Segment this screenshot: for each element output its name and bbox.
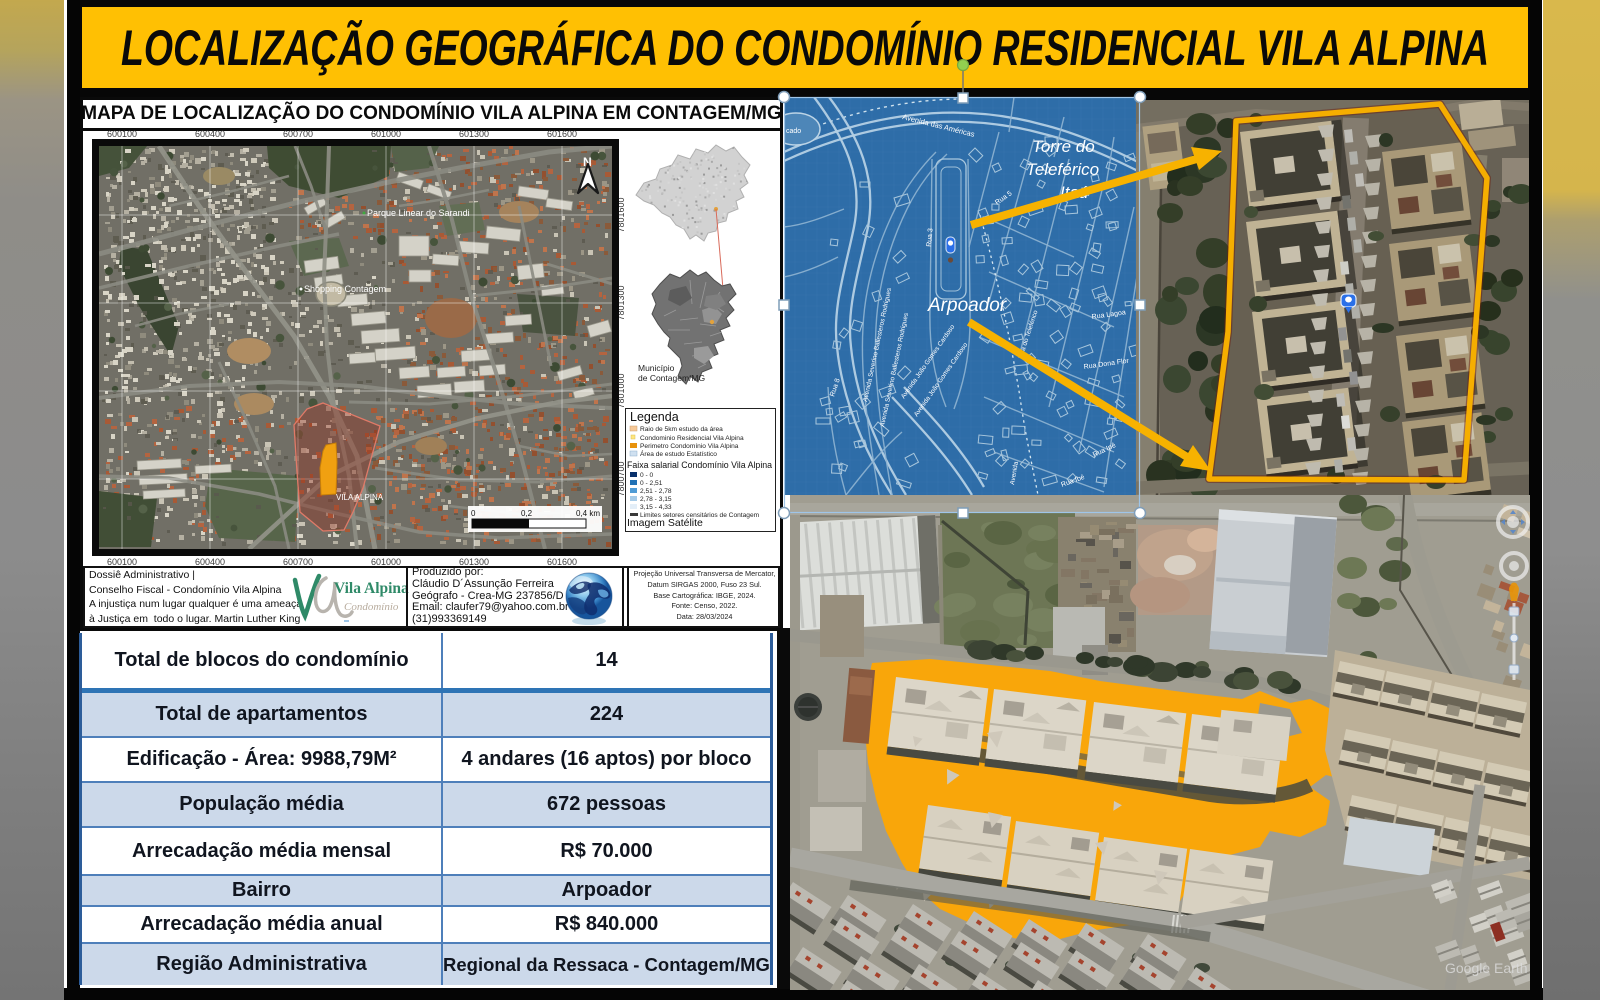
svg-text:Teleférico: Teleférico <box>1026 160 1099 179</box>
svg-text:3,15 - 4,33: 3,15 - 4,33 <box>640 504 672 511</box>
svg-text:Torre do: Torre do <box>1032 137 1095 156</box>
svg-text:Arpoador: Arpoador <box>927 295 1007 316</box>
svg-text:0 - 0: 0 - 0 <box>640 472 654 479</box>
svg-text:2,78 - 3,15: 2,78 - 3,15 <box>640 496 672 503</box>
svg-text:Condomínio: Condomínio <box>344 601 399 613</box>
svg-text:Raio de 5km estudo da área: Raio de 5km estudo da área <box>640 426 723 433</box>
svg-text:Perimetro Condomínio Vila Alpi: Perimetro Condomínio Vila Alpina <box>640 443 739 450</box>
svg-text:Google Earth: Google Earth <box>1445 960 1528 976</box>
svg-text:2,51 - 2,78: 2,51 - 2,78 <box>640 488 672 495</box>
svg-text:Imagem Satélite: Imagem Satélite <box>627 517 703 529</box>
svg-text:0 - 2,51: 0 - 2,51 <box>640 480 663 487</box>
svg-text:Área de estudo Estatístico: Área de estudo Estatístico <box>640 449 717 458</box>
svg-text:Condominio Residencial Vila Al: Condominio Residencial Vila Alpina <box>640 435 744 442</box>
svg-text:Faixa salarial Condomínio Vila: Faixa salarial Condomínio Vila Alpina <box>627 460 772 470</box>
svg-text:Itaú: Itaú <box>1060 183 1089 202</box>
svg-text:cado: cado <box>786 128 801 135</box>
svg-text:Vila Alpina: Vila Alpina <box>334 580 409 597</box>
